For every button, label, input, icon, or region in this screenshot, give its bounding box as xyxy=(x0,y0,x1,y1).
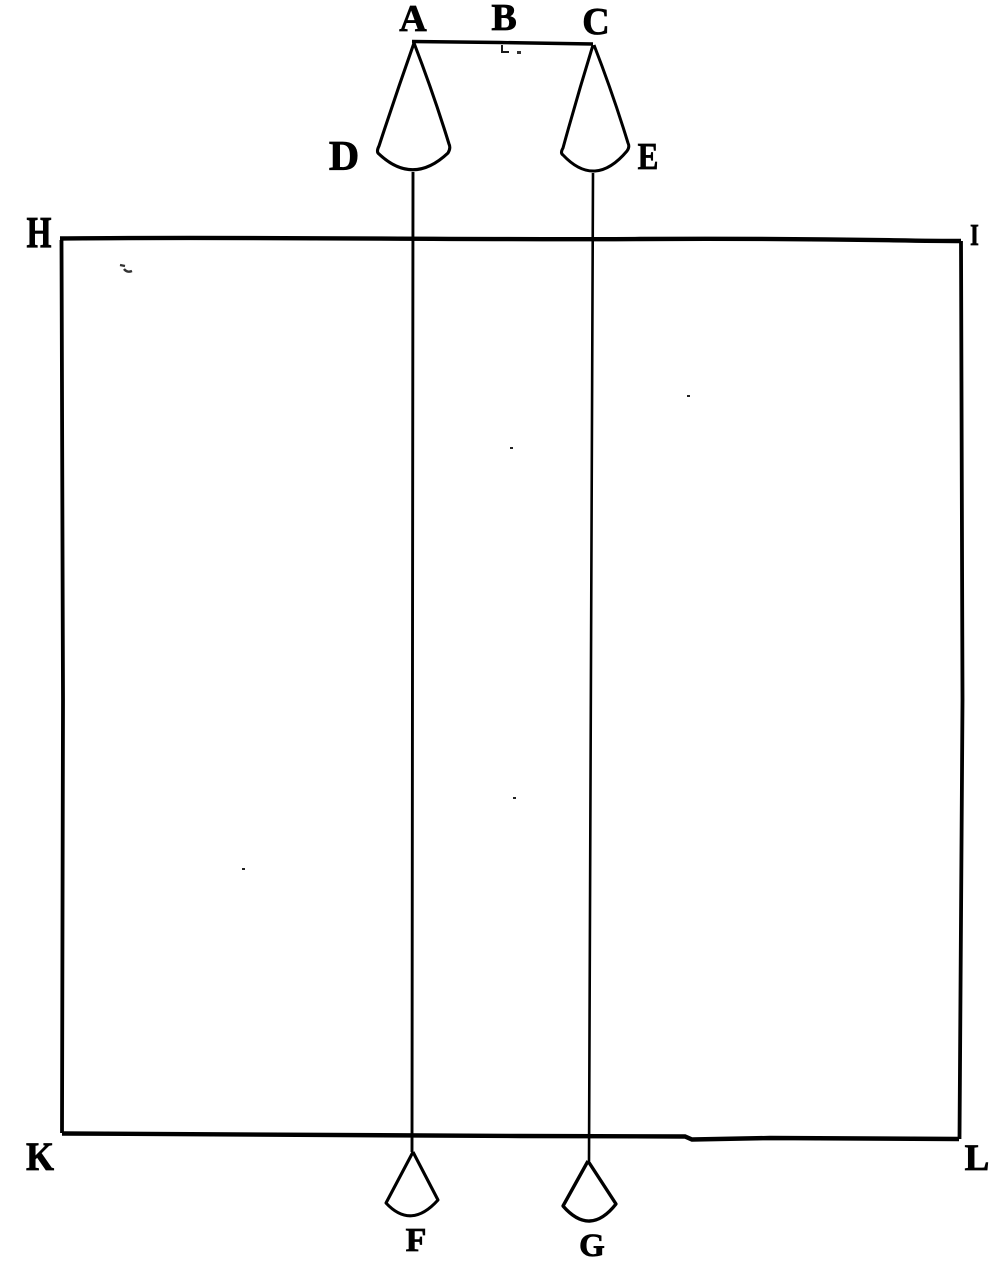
svg-text:G: G xyxy=(579,1228,605,1264)
svg-text:A: A xyxy=(399,0,427,40)
svg-text:D: D xyxy=(329,134,359,180)
svg-text:L: L xyxy=(965,1138,990,1179)
svg-text:I: I xyxy=(970,217,979,251)
svg-text:H: H xyxy=(27,209,52,257)
svg-text:B: B xyxy=(491,0,516,39)
svg-text:C: C xyxy=(582,1,609,43)
svg-text:E: E xyxy=(638,135,659,178)
svg-text:F: F xyxy=(406,1222,427,1259)
svg-text:K: K xyxy=(26,1135,54,1179)
